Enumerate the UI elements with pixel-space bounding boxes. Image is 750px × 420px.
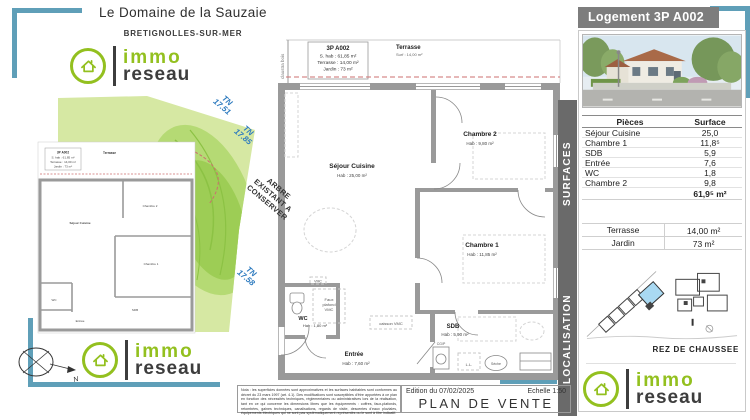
north-compass-icon: N <box>12 340 92 388</box>
svg-text:N: N <box>73 376 81 384</box>
svg-text:S. hab : 61,85 m²: S. hab : 61,85 m² <box>51 156 74 160</box>
svg-text:Jardin : 73 m²: Jardin : 73 m² <box>323 67 353 73</box>
table-row: Chambre 111,8⁵ <box>582 138 742 148</box>
svg-text:Hab : 7,60 m²: Hab : 7,60 m² <box>342 361 370 366</box>
terrasse-surface: Surf : 14,00 m² <box>396 52 423 57</box>
svg-text:Séjour Cuisine: Séjour Cuisine <box>329 163 375 170</box>
table-row: SDB5,9 <box>582 148 742 158</box>
logo-reseau-text: reseau <box>123 65 190 84</box>
surface-table-header: Pièces Surface <box>582 115 742 128</box>
page-subtitle: BRETIGNOLLES-SUR-MER <box>78 29 288 38</box>
svg-text:Hab : 25,00 m²: Hab : 25,00 m² <box>337 173 367 178</box>
svg-text:VMC: VMC <box>314 280 322 284</box>
svg-text:Hab : 9,80 m²: Hab : 9,80 m² <box>466 141 494 146</box>
bracket-top-left-h <box>12 8 82 13</box>
table-row: Chambre 29,8 <box>582 178 742 188</box>
house-icon <box>82 342 118 378</box>
svg-text:L.L.: L.L. <box>466 362 473 367</box>
svg-text:Terrasse: Terrasse <box>103 151 116 155</box>
localisation-map <box>585 267 739 343</box>
surface-total: 61,9⁵ m² <box>582 188 742 200</box>
svg-text:SDB: SDB <box>447 324 460 330</box>
svg-text:Séjour Cuisine: Séjour Cuisine <box>69 221 90 225</box>
interior-walls <box>285 90 553 373</box>
divider-line <box>586 363 736 364</box>
svg-text:SDB: SDB <box>132 308 138 312</box>
side-panel: Pièces Surface Séjour Cuisine25,0 Chambr… <box>578 30 746 412</box>
table-row: Jardin73 m² <box>582 237 742 250</box>
svg-text:caisson VMC: caisson VMC <box>379 321 403 326</box>
claustra-bois-label: claustra bois <box>280 53 285 79</box>
mini-floor-plan: 3P A002 S. hab : 61,85 m² Terrasse : 14,… <box>38 142 195 333</box>
svg-text:Hab : 11,85 m²: Hab : 11,85 m² <box>467 252 497 257</box>
svg-text:Jardin : 73 m²: Jardin : 73 m² <box>54 165 72 169</box>
page-title: Le Domaine de la Sauzaie <box>78 5 288 20</box>
logo-reseau-text: reseau <box>636 388 703 407</box>
svg-text:3P A002: 3P A002 <box>57 151 69 155</box>
svg-text:CG/P: CG/P <box>437 342 446 346</box>
immo-reseau-logo-panel: immo reseau <box>583 369 703 409</box>
svg-text:WC: WC <box>52 298 58 302</box>
edition-date: Edition du 07/02/2025 <box>406 388 474 395</box>
building-photo <box>582 34 742 108</box>
table-row: Entrée7,6 <box>582 158 742 168</box>
bracket-top-left-v <box>12 8 17 78</box>
technical-notes: VMC Faux plafond VMC caisson VMC CG/P L.… <box>314 280 501 368</box>
header: Le Domaine de la Sauzaie BRETIGNOLLES-SU… <box>78 5 288 38</box>
terrasse-label: Terrasse <box>396 45 421 51</box>
logo-reseau-text: reseau <box>135 359 202 378</box>
unit-banner: Logement 3P A002 <box>578 7 719 28</box>
svg-text:Terrasse : 14,00 m²: Terrasse : 14,00 m² <box>50 160 76 164</box>
logo-divider <box>626 369 629 409</box>
document-title: PLAN DE VENTE <box>402 396 570 411</box>
tab-surfaces: SURFACES <box>562 114 573 206</box>
svg-text:3P A002: 3P A002 <box>326 46 350 52</box>
svg-text:Chambre 1: Chambre 1 <box>144 262 159 266</box>
room-labels: Séjour Cuisine Hab : 25,00 m² Chambre 2 … <box>298 131 499 366</box>
svg-text:WC: WC <box>298 316 307 322</box>
svg-text:VMC: VMC <box>325 307 334 312</box>
house-icon <box>583 371 619 407</box>
scale-label: Echelle 1:50 <box>527 388 566 395</box>
unit-info-box: 3P A002 S. hab : 61,85 m² Terrasse : 14,… <box>308 42 368 79</box>
legal-nota: Nota : les superficies données sont appr… <box>237 385 401 413</box>
table-row: WC1,8 <box>582 168 742 178</box>
svg-text:Chambre 1: Chambre 1 <box>465 242 499 249</box>
tab-localisation: LOCALISATION <box>562 254 573 384</box>
svg-text:Entrée: Entrée <box>76 319 85 323</box>
svg-text:S. hab : 61,85 m²: S. hab : 61,85 m² <box>320 54 357 60</box>
logo-divider <box>125 340 128 380</box>
svg-text:Chambre 2: Chambre 2 <box>463 131 497 138</box>
svg-text:Hab : 1,80 m²: Hab : 1,80 m² <box>303 323 328 328</box>
svg-text:Chambre 2: Chambre 2 <box>143 204 158 208</box>
svg-text:Entrée: Entrée <box>345 352 364 358</box>
immo-reseau-logo-header: immo reseau <box>70 46 190 86</box>
house-icon <box>70 48 106 84</box>
exterior-table: Terrasse14,00 m² Jardin73 m² <box>582 223 742 250</box>
side-tabs-bar: SURFACES LOCALISATION <box>558 100 577 416</box>
table-row: Terrasse14,00 m² <box>582 224 742 237</box>
table-row: Séjour Cuisine25,0 <box>582 128 742 138</box>
svg-text:Sèche: Sèche <box>491 362 501 366</box>
plan-de-vente-page: Le Domaine de la Sauzaie BRETIGNOLLES-SU… <box>0 0 750 420</box>
svg-text:Hab : 5,90 m²: Hab : 5,90 m² <box>441 332 469 337</box>
title-block: Edition du 07/02/2025 Echelle 1:50 PLAN … <box>401 385 571 413</box>
logo-divider <box>113 46 116 86</box>
immo-reseau-logo-footer: immo reseau <box>82 340 202 380</box>
surface-table: Pièces Surface Séjour Cuisine25,0 Chambr… <box>582 115 742 200</box>
main-floor-plan: claustra bois 3P A002 S. hab : 61,85 m² … <box>268 35 565 390</box>
svg-text:Terrasse : 14,00 m²: Terrasse : 14,00 m² <box>317 60 359 66</box>
floor-level-label: REZ DE CHAUSSEE <box>619 345 739 354</box>
